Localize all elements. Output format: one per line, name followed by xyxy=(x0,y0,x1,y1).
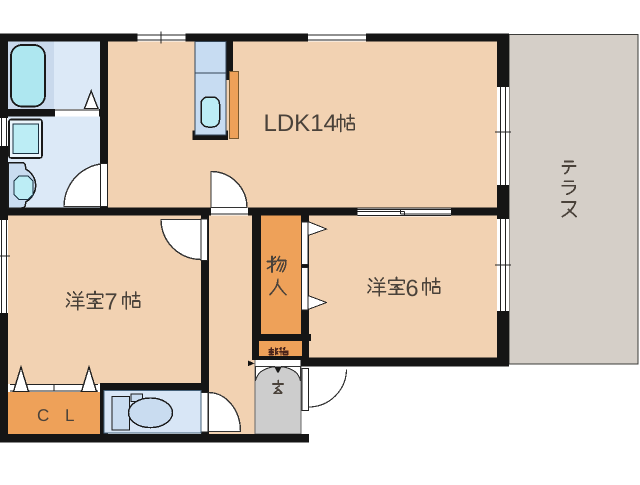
svg-text:C L: C L xyxy=(37,406,80,425)
svg-text:6: 6 xyxy=(406,275,419,301)
svg-text:7: 7 xyxy=(105,289,118,315)
svg-text:LDK14: LDK14 xyxy=(264,110,337,137)
